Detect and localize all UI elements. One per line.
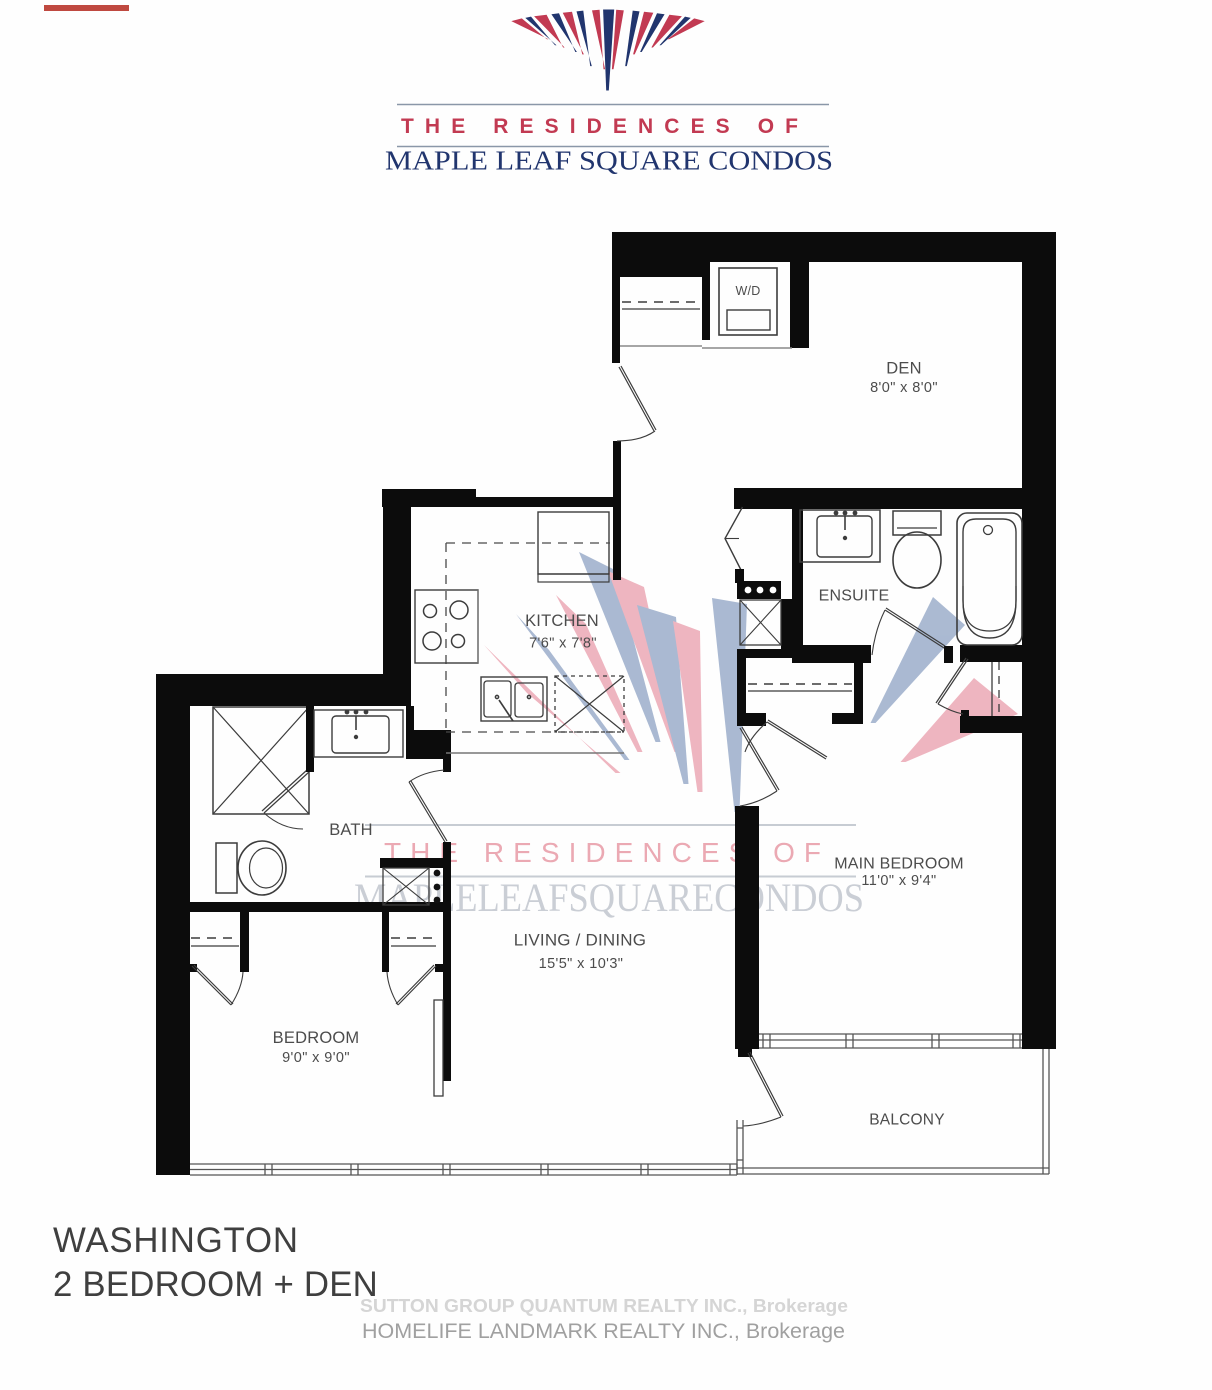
svg-text:LIVING / DINING: LIVING / DINING bbox=[514, 931, 646, 950]
svg-text:DEN: DEN bbox=[886, 360, 921, 378]
svg-text:15'5" x 10'3": 15'5" x 10'3" bbox=[539, 956, 624, 972]
svg-text:MAPLELEAFSQUARECONDOS: MAPLELEAFSQUARECONDOS bbox=[354, 875, 864, 920]
svg-text:11'0" x 9'4": 11'0" x 9'4" bbox=[861, 873, 936, 889]
svg-text:MAIN BEDROOM: MAIN BEDROOM bbox=[834, 856, 964, 873]
svg-text:9'0" x 9'0": 9'0" x 9'0" bbox=[282, 1050, 350, 1066]
svg-text:7'6" x 7'8": 7'6" x 7'8" bbox=[529, 636, 597, 652]
svg-text:SUTTON GROUP QUANTUM REALTY IN: SUTTON GROUP QUANTUM REALTY INC., Broker… bbox=[360, 1295, 848, 1316]
svg-text:BATH: BATH bbox=[329, 821, 373, 839]
svg-text:ENSUITE: ENSUITE bbox=[819, 588, 890, 605]
svg-text:BEDROOM: BEDROOM bbox=[273, 1029, 360, 1047]
svg-text:2 BEDROOM + DEN: 2 BEDROOM + DEN bbox=[53, 1265, 378, 1304]
svg-text:HOMELIFE LANDMARK REALTY INC.,: HOMELIFE LANDMARK REALTY INC., Brokerage bbox=[362, 1320, 845, 1343]
svg-text:8'0" x 8'0": 8'0" x 8'0" bbox=[870, 380, 938, 396]
svg-text:W/D: W/D bbox=[736, 284, 761, 298]
svg-text:WASHINGTON: WASHINGTON bbox=[53, 1221, 299, 1260]
svg-text:KITCHEN: KITCHEN bbox=[525, 612, 599, 630]
svg-text:MAPLE LEAF SQUARE CONDOS: MAPLE LEAF SQUARE CONDOS bbox=[385, 146, 833, 176]
svg-text:BALCONY: BALCONY bbox=[869, 1112, 944, 1129]
